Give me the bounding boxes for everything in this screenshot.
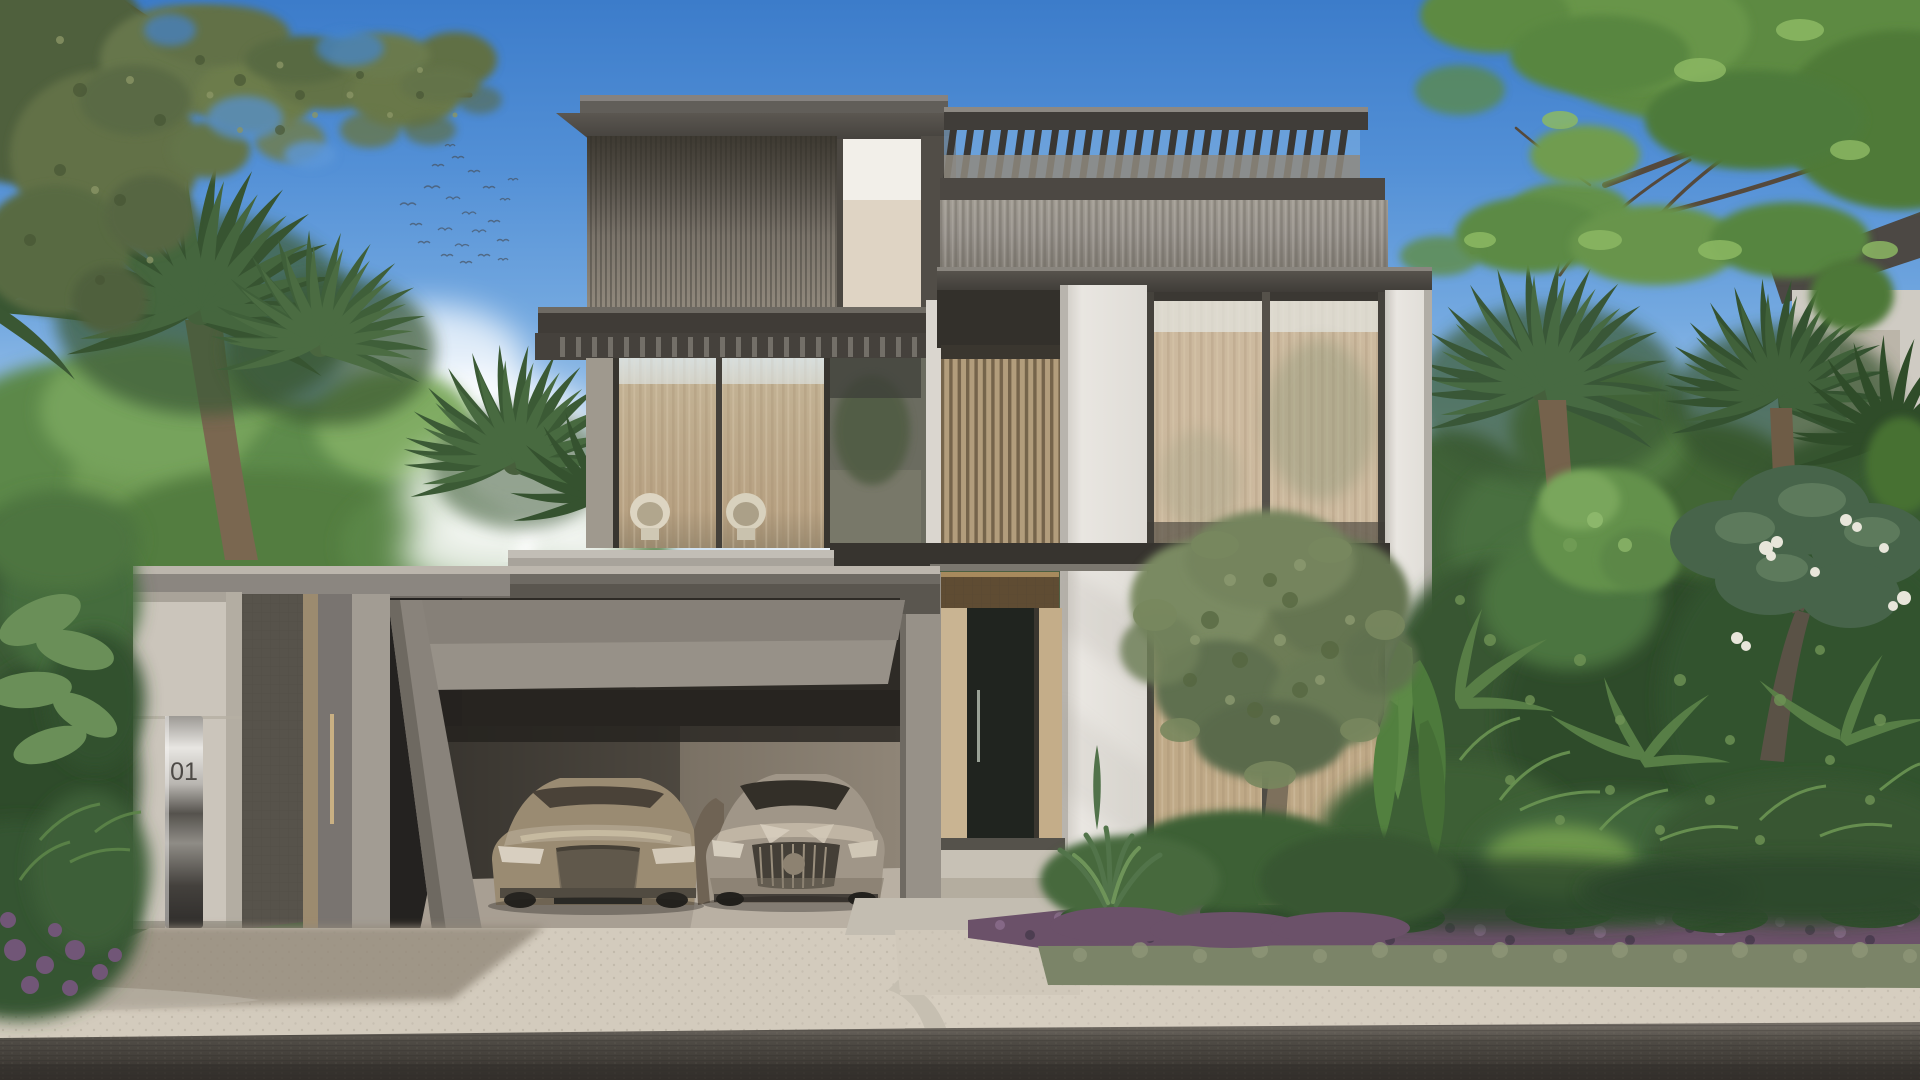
svg-text:01: 01: [170, 758, 198, 786]
